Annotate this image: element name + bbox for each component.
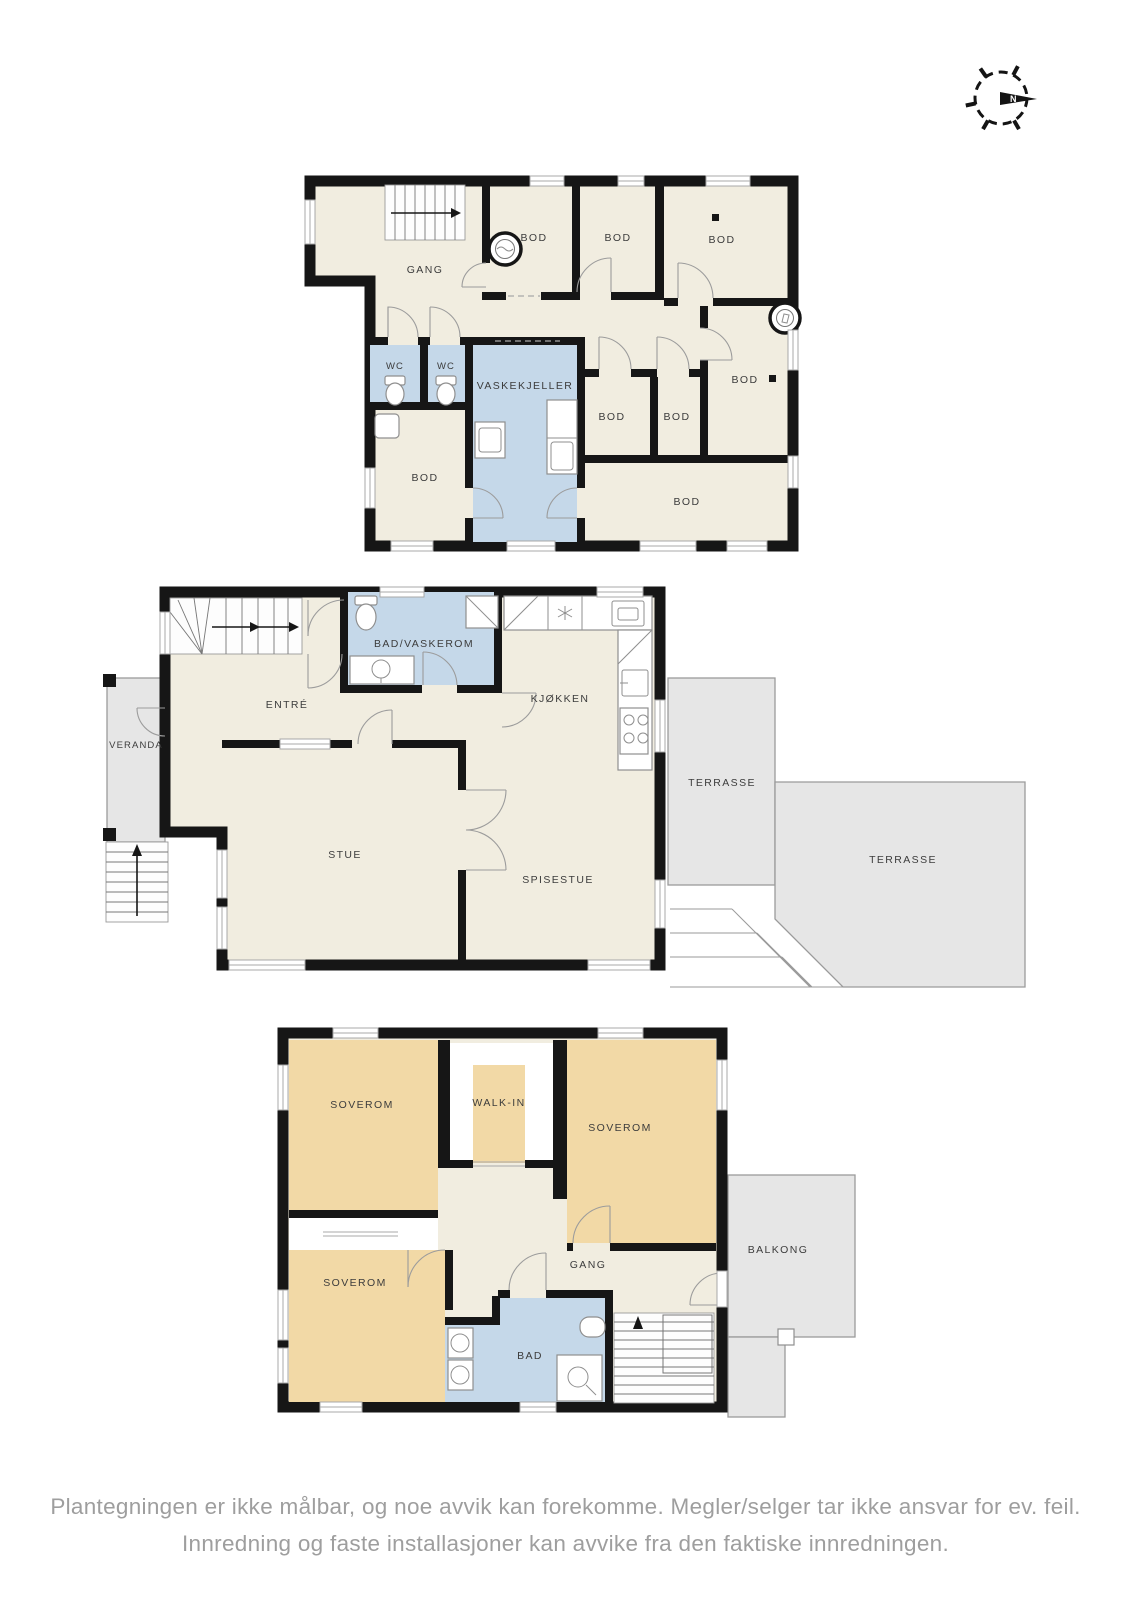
shower-icon: [557, 1355, 602, 1401]
room-label-bod: BOD: [599, 411, 626, 423]
water-heater-icon: [489, 233, 521, 265]
balkong-post: [778, 1329, 794, 1345]
exterior-stairs-icon: [106, 842, 168, 922]
room-label-veranda: VERANDA: [109, 740, 163, 751]
room-label-bod: BOD: [709, 234, 736, 246]
room-label-balkong: BALKONG: [748, 1244, 809, 1256]
veranda-post: [103, 828, 116, 841]
veranda-post: [103, 674, 116, 687]
room-label-gang: GANG: [570, 1259, 607, 1271]
room-label-bod: BOD: [664, 411, 691, 423]
disclaimer-line-1: Plantegningen er ikke målbar, og noe avv…: [0, 1488, 1131, 1525]
room-label-spisestue: SPISESTUE: [522, 874, 594, 886]
sink-icon: [375, 414, 399, 438]
chimney-marker: [712, 214, 719, 221]
room-label-walk-in: WALK-IN: [472, 1097, 525, 1109]
room-label-bod: BOD: [412, 472, 439, 484]
room-label-soverom: SOVEROM: [323, 1277, 386, 1289]
stairs-down-icon: [614, 1313, 714, 1403]
stove-icon: [620, 708, 648, 754]
floor-2-plan: ENTRÉ BAD/VASKEROM KJØKKEN VERANDA STUE …: [92, 582, 1037, 997]
room-label-bod: BOD: [521, 232, 548, 244]
walk-in-room: [473, 1065, 525, 1163]
bathroom-sink-icon: [448, 1360, 473, 1390]
room-label-kjokken: KJØKKEN: [531, 693, 590, 705]
toilet-icon: [355, 596, 377, 630]
veranda-area: [107, 678, 165, 842]
room-label-terrasse: TERRASSE: [688, 777, 756, 789]
chimney-marker: [769, 375, 776, 382]
room-label-wc: WC: [437, 361, 455, 372]
toilet-icon: [385, 376, 405, 405]
room-label-soverom: SOVEROM: [330, 1099, 393, 1111]
laundry-counter-icon: [547, 400, 577, 474]
compass-north-label: N: [1010, 94, 1017, 104]
terrasse-2-area: [775, 782, 1025, 987]
corner-cabinet-icon: [466, 596, 498, 628]
room-label-bod: BOD: [605, 232, 632, 244]
balkong-strip: [728, 1337, 785, 1417]
closet-strip: [450, 1043, 473, 1165]
room-label-stue: STUE: [328, 849, 362, 861]
room-label-bad-vaskerom: BAD/VASKEROM: [374, 638, 474, 650]
compass-needle: [1000, 92, 1037, 105]
stairs-up-icon: [385, 185, 465, 240]
room-label-vaskekjeller: VASKEKJELLER: [477, 380, 574, 392]
soverom-1-room: [289, 1040, 438, 1210]
winder-stairs-icon: [170, 598, 302, 654]
room-label-gang: GANG: [407, 264, 444, 276]
wardrobe-band: [289, 1218, 438, 1250]
floor-plan-page: N: [0, 0, 1131, 1600]
closet-strip: [525, 1043, 553, 1165]
disclaimer-text: Plantegningen er ikke målbar, og noe avv…: [0, 1488, 1131, 1562]
room-label-wc: WC: [386, 361, 404, 372]
floor-1-plan: GANG BOD BOD BOD BOD WC WC VASKEKJELLER …: [295, 170, 810, 560]
room-label-soverom: SOVEROM: [588, 1122, 651, 1134]
toilet-icon: [580, 1317, 605, 1337]
floor-3-plan: SOVEROM WALK-IN SOVEROM SOVEROM GANG BAD…: [258, 1003, 858, 1423]
bathroom-sink-icon: [350, 656, 414, 684]
water-heater-icon: [770, 303, 800, 333]
room-label-bod: BOD: [732, 374, 759, 386]
closet-strip: [473, 1043, 525, 1065]
room-label-entre: ENTRÉ: [266, 698, 309, 711]
bathroom-sink-icon: [448, 1328, 473, 1358]
soverom-3-room: [289, 1250, 445, 1402]
room-label-bod: BOD: [674, 496, 701, 508]
laundry-sink-icon: [475, 422, 505, 458]
room-label-terrasse: TERRASSE: [869, 854, 937, 866]
balkong-area: [728, 1175, 855, 1337]
compass-icon: N: [963, 60, 1041, 138]
room-label-bad: BAD: [517, 1350, 543, 1362]
toilet-icon: [436, 376, 456, 405]
disclaimer-line-2: Innredning og faste installasjoner kan a…: [0, 1525, 1131, 1562]
